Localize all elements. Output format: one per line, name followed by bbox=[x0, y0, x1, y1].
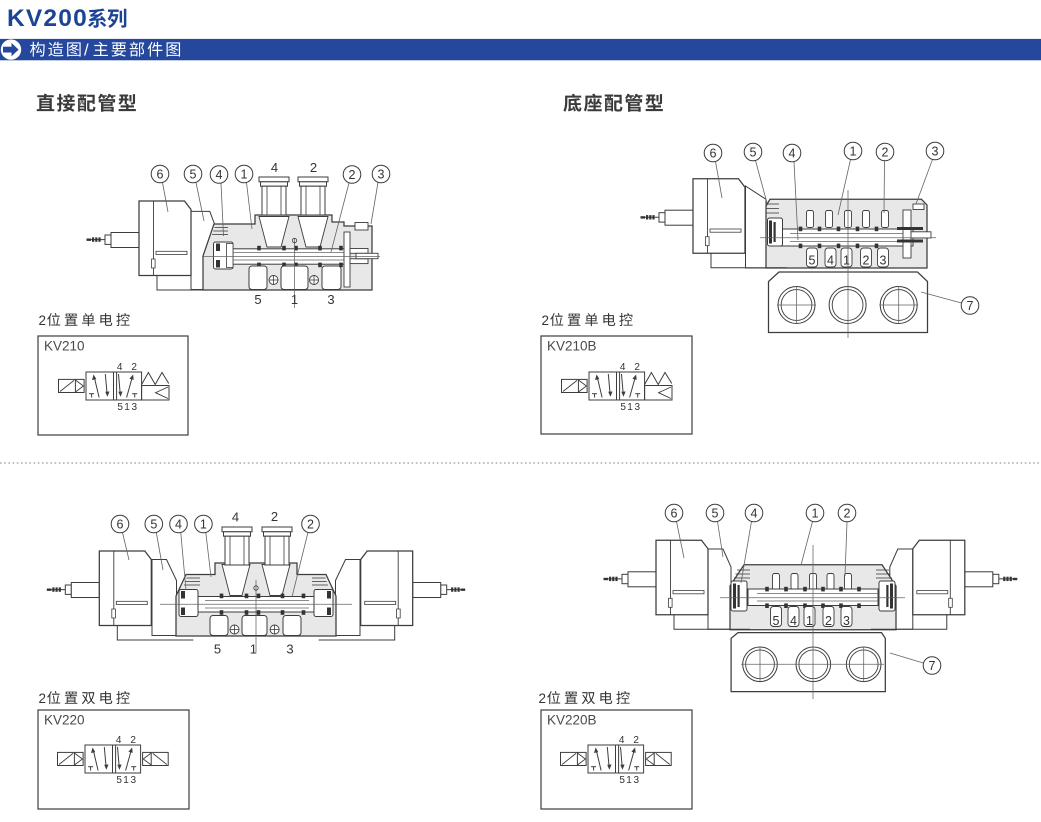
svg-text:3: 3 bbox=[131, 775, 137, 786]
svg-text:4: 4 bbox=[619, 735, 625, 746]
svg-text:1: 1 bbox=[124, 402, 130, 413]
svg-text:KV200: KV200 bbox=[7, 5, 88, 32]
svg-text:2: 2 bbox=[634, 362, 640, 373]
svg-text:2: 2 bbox=[349, 168, 356, 182]
svg-text:2: 2 bbox=[825, 614, 832, 628]
svg-text:1: 1 bbox=[812, 506, 819, 520]
svg-text:KV220: KV220 bbox=[44, 713, 85, 728]
svg-text:4: 4 bbox=[789, 146, 796, 160]
svg-text:4: 4 bbox=[117, 362, 123, 373]
svg-text:2: 2 bbox=[39, 691, 47, 706]
svg-text:2: 2 bbox=[310, 160, 317, 175]
svg-text:3: 3 bbox=[634, 775, 640, 786]
svg-text:4: 4 bbox=[116, 735, 122, 746]
svg-text:4: 4 bbox=[232, 510, 239, 525]
svg-text:5: 5 bbox=[117, 402, 123, 413]
svg-text:5: 5 bbox=[190, 167, 197, 181]
svg-text:5: 5 bbox=[773, 614, 780, 628]
svg-text:3: 3 bbox=[635, 402, 641, 413]
svg-text:3: 3 bbox=[132, 402, 138, 413]
svg-text:6: 6 bbox=[117, 517, 124, 531]
svg-text:4: 4 bbox=[271, 160, 278, 175]
svg-text:KV220B: KV220B bbox=[547, 713, 597, 728]
svg-text:3: 3 bbox=[286, 642, 293, 657]
svg-text:5: 5 bbox=[214, 642, 221, 657]
svg-text:5: 5 bbox=[620, 402, 626, 413]
svg-text:4: 4 bbox=[790, 614, 797, 628]
svg-text:1: 1 bbox=[200, 517, 207, 531]
svg-text:4: 4 bbox=[751, 506, 758, 520]
svg-text:4: 4 bbox=[827, 254, 834, 268]
svg-text:4: 4 bbox=[216, 168, 223, 182]
svg-text:6: 6 bbox=[157, 167, 164, 181]
svg-text:5: 5 bbox=[150, 517, 157, 531]
svg-text:KV210: KV210 bbox=[44, 339, 85, 354]
svg-text:2: 2 bbox=[633, 735, 639, 746]
svg-text:7: 7 bbox=[929, 659, 936, 673]
svg-text:1: 1 bbox=[850, 144, 857, 158]
svg-text:2: 2 bbox=[542, 313, 550, 328]
svg-text:5: 5 bbox=[619, 775, 625, 786]
svg-text:2: 2 bbox=[882, 145, 889, 159]
svg-text:2: 2 bbox=[39, 313, 47, 328]
svg-text:1: 1 bbox=[241, 167, 248, 181]
svg-text:5: 5 bbox=[750, 145, 757, 159]
svg-text:2: 2 bbox=[131, 362, 137, 373]
svg-text:3: 3 bbox=[932, 144, 939, 158]
svg-text:3: 3 bbox=[880, 254, 887, 268]
svg-text:3: 3 bbox=[843, 614, 850, 628]
svg-text:1: 1 bbox=[291, 292, 298, 307]
svg-text:2: 2 bbox=[844, 506, 851, 520]
svg-text:7: 7 bbox=[967, 299, 974, 313]
svg-text:1: 1 bbox=[843, 254, 850, 268]
svg-text:3: 3 bbox=[327, 292, 334, 307]
svg-text:2: 2 bbox=[307, 517, 314, 531]
svg-text:2: 2 bbox=[539, 691, 547, 706]
svg-text:1: 1 bbox=[627, 402, 633, 413]
svg-text:6: 6 bbox=[671, 506, 678, 520]
svg-text:/: / bbox=[84, 41, 89, 59]
svg-text:6: 6 bbox=[710, 146, 717, 160]
svg-text:5: 5 bbox=[809, 254, 816, 268]
svg-text:KV210B: KV210B bbox=[547, 339, 597, 354]
svg-text:1: 1 bbox=[123, 775, 129, 786]
svg-text:2: 2 bbox=[863, 254, 870, 268]
svg-text:4: 4 bbox=[175, 517, 182, 531]
svg-text:1: 1 bbox=[626, 775, 632, 786]
svg-text:2: 2 bbox=[271, 509, 278, 524]
svg-text:5: 5 bbox=[116, 775, 122, 786]
svg-text:5: 5 bbox=[712, 506, 719, 520]
svg-text:4: 4 bbox=[620, 362, 626, 373]
svg-text:3: 3 bbox=[378, 167, 385, 181]
svg-text:2: 2 bbox=[130, 735, 136, 746]
svg-text:1: 1 bbox=[250, 642, 257, 657]
svg-text:5: 5 bbox=[254, 292, 261, 307]
svg-text:1: 1 bbox=[806, 614, 813, 628]
